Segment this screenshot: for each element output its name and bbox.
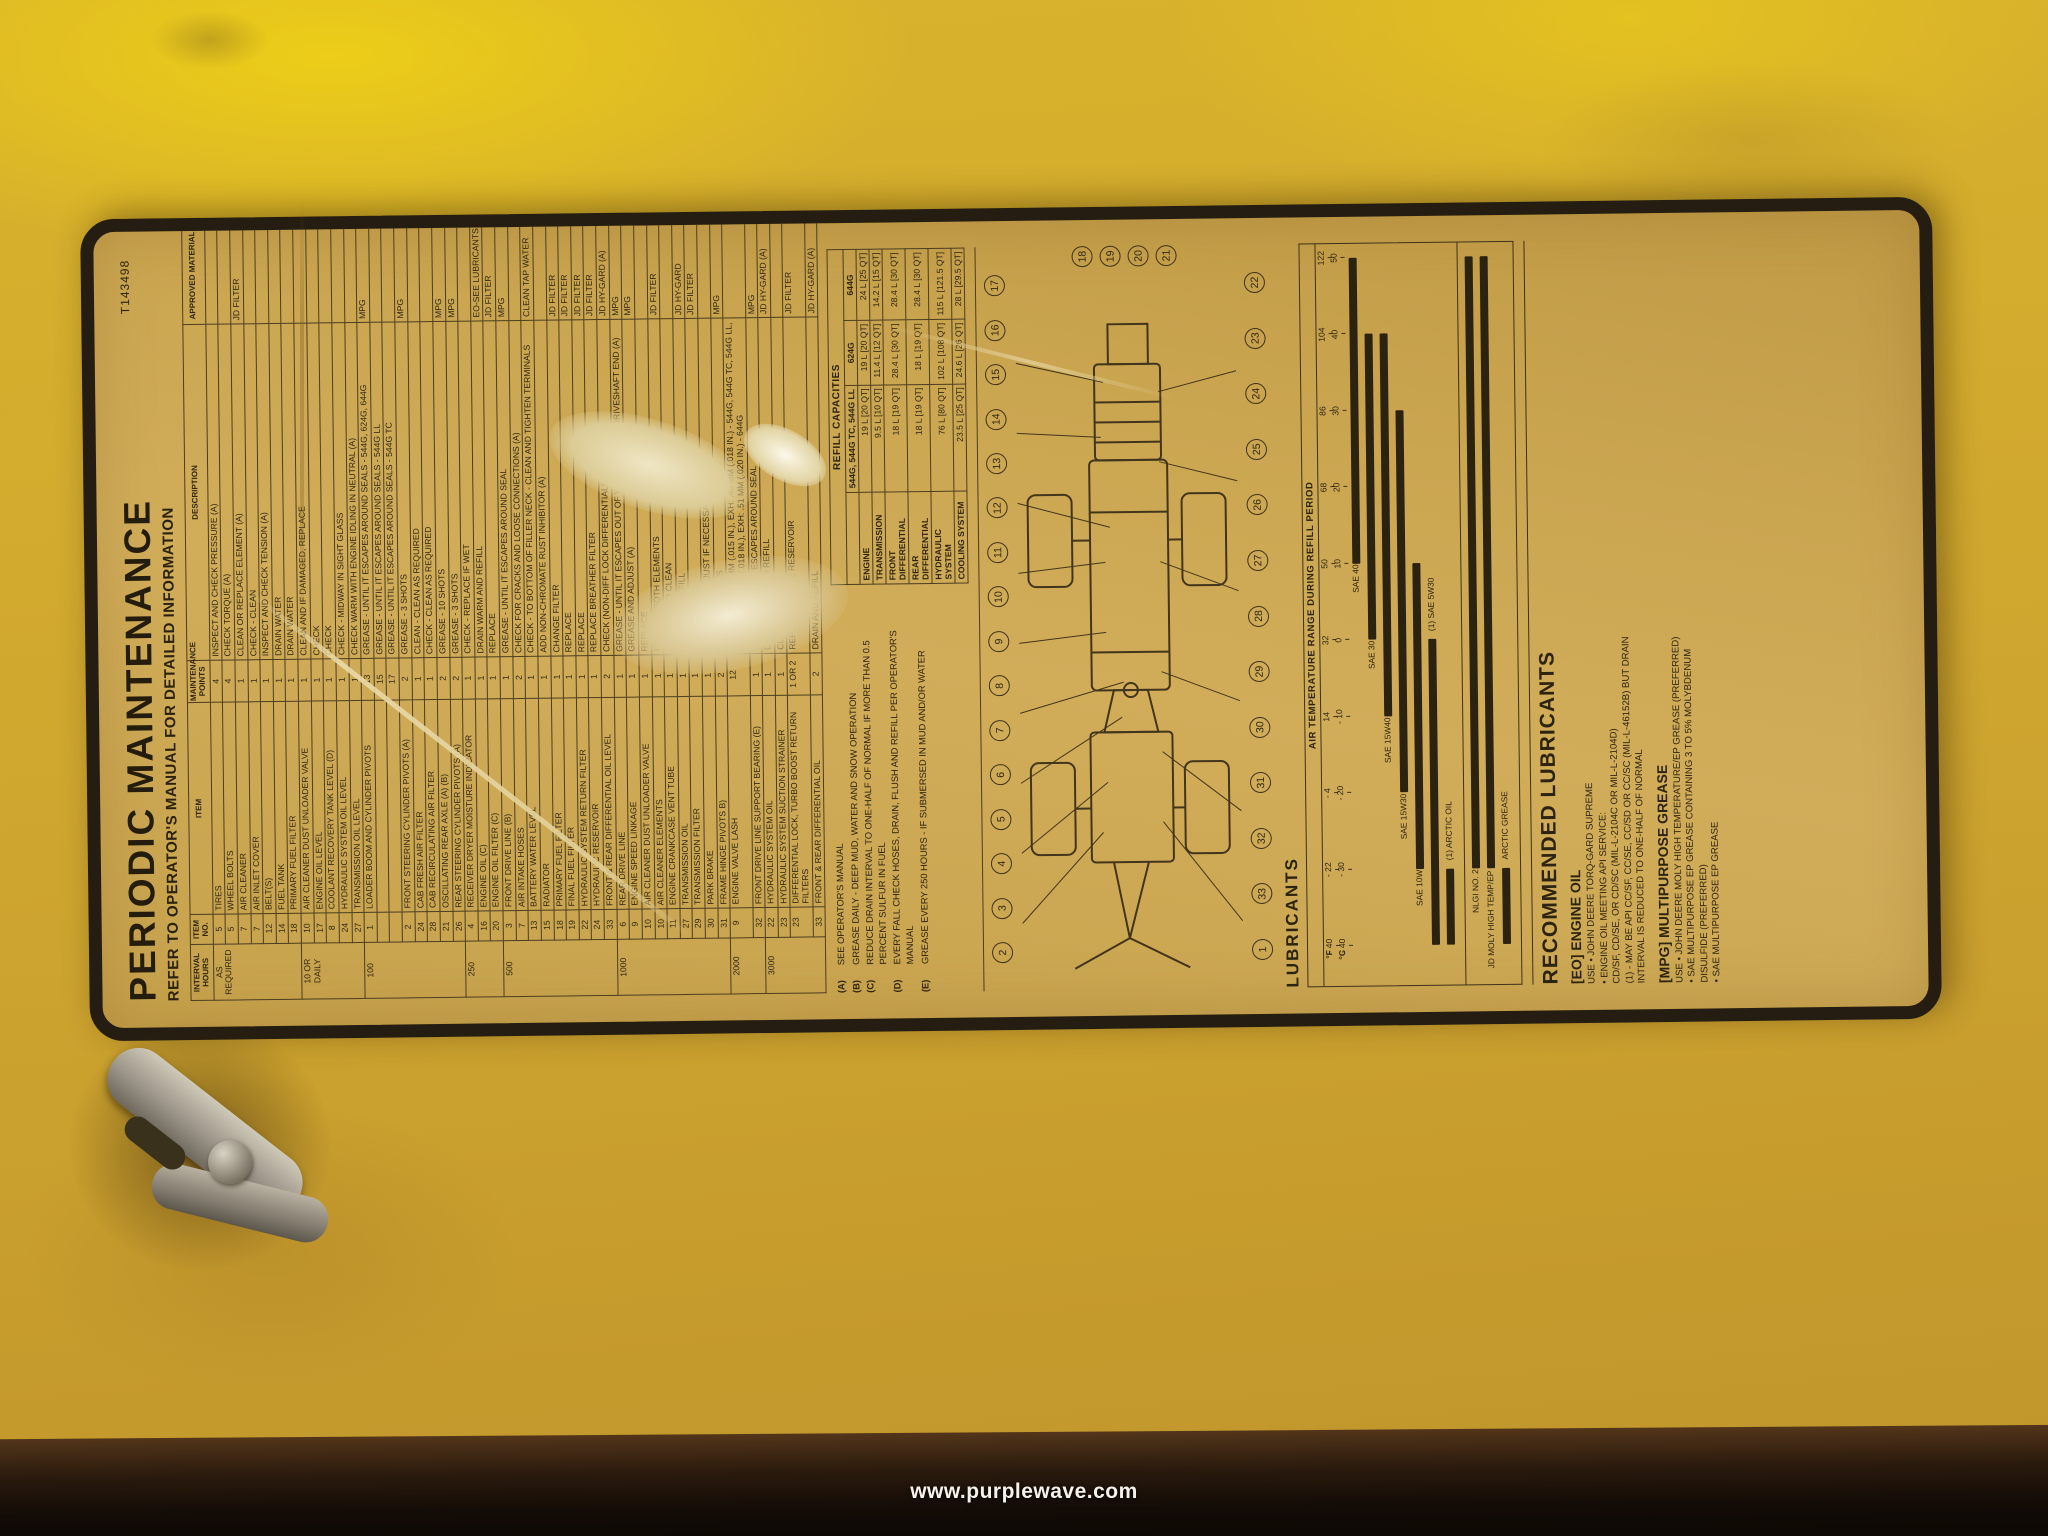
tick-mark (1344, 486, 1348, 487)
cell: 1 (235, 660, 248, 702)
cell: 5 (213, 914, 226, 944)
refill-system: ENGINE (859, 492, 873, 584)
paint-stain (1540, 60, 1960, 220)
col-item: ITEM (187, 702, 212, 914)
cell (722, 220, 745, 318)
refill-system: COOLING SYSTEM (954, 491, 968, 583)
cell: 8 (326, 913, 339, 943)
cell: JD FILTER (570, 222, 584, 320)
cell: 28 (427, 911, 440, 941)
cell: 2 (810, 653, 823, 695)
cell: 2 (437, 657, 450, 699)
machine-drawing-wrap: 18192021 (1007, 244, 1251, 991)
bar-label: SAE 15W30 (1398, 794, 1409, 840)
callout-23: 23 (1245, 328, 1266, 349)
refill-value: 28 L [29.5 QT] (951, 248, 965, 319)
cell: 17 (386, 658, 399, 700)
cell: 33 (813, 907, 826, 937)
cell (343, 224, 357, 322)
callout-31: 31 (1250, 772, 1271, 793)
refill-value: 23.5 L [25 QT] (953, 384, 967, 491)
bar-label: (1) SAE 5W30 (1426, 578, 1437, 632)
tick-mark (1347, 792, 1351, 793)
cell: 13 (528, 910, 541, 940)
refill-value: 11.4 L [12 QT] (870, 320, 884, 385)
cell: CLEAN TAP WATER (520, 222, 534, 320)
engine-oil-lines: USE • JOHN DEERE TORQ-GARD SUPREME• ENGI… (1578, 239, 1649, 984)
tick-label: 0 (1334, 638, 1344, 643)
cell: MPG (356, 224, 370, 322)
cell: 22 (765, 907, 778, 937)
loader-top-view-drawing (1007, 273, 1251, 991)
cell: JD HY-GARD (A) (596, 221, 610, 319)
bar-label: SAE 15W40 (1382, 717, 1393, 763)
grease-bars: NLGI NO. 2JD MOLY HIGH TEMP/EPARCTIC GRE… (1462, 256, 1515, 944)
cell: 2 (399, 658, 412, 700)
cell: 1 (462, 657, 475, 699)
callout-26: 26 (1247, 494, 1268, 515)
temperature-range-bar (1502, 867, 1511, 944)
tick-label: - 40 (1324, 939, 1334, 954)
tick-label: - 30 (1336, 862, 1346, 877)
cell: 7 (238, 914, 251, 944)
cell: 26 (453, 911, 466, 941)
refill-value: 24.6 L [26 QT] (952, 319, 966, 384)
callout-29: 29 (1249, 661, 1270, 682)
watermark-text: www.purplewave.com (910, 1480, 1138, 1504)
cell: 1 (576, 656, 589, 698)
cell (331, 225, 345, 323)
cell (634, 221, 648, 319)
tick-mark (1345, 563, 1349, 564)
cell: MPG (432, 223, 446, 321)
cell: 4 (222, 660, 235, 702)
refill-value: 9.5 L [10 QT] (871, 385, 885, 492)
callout-3: 3 (992, 898, 1013, 919)
cell: 1 (475, 657, 488, 699)
cell: 1 (563, 656, 576, 698)
cell: 16 (478, 911, 491, 941)
cell: 3 (503, 911, 516, 941)
bar-label: ARCTIC GREASE (1499, 791, 1510, 860)
callout-2: 2 (992, 942, 1013, 963)
col-maintenance-points: MAINTENANCE POINTS (187, 660, 210, 702)
cell (507, 222, 521, 320)
cell (377, 912, 390, 942)
refill-value: 28.4 L [30 QT] (905, 248, 929, 319)
tick-label: - 10 (1334, 709, 1344, 724)
cell: JD FILTER (782, 219, 805, 317)
cell: JD FILTER (684, 220, 698, 318)
cell (305, 225, 319, 323)
cell (217, 226, 231, 324)
cell: MPG (394, 224, 408, 322)
cell: JD HY-GARD (A) (757, 219, 771, 317)
tick-mark (1349, 945, 1353, 946)
footnote-code: (B) (850, 971, 863, 993)
cell: 1 (775, 653, 788, 695)
cell: 9 (730, 908, 753, 938)
tick-label: - 4 (1322, 788, 1332, 798)
cell: 9 (629, 909, 642, 939)
callout-14: 14 (986, 409, 1007, 430)
machine-callout-diagram: 234567891011121314151617 (975, 244, 1274, 991)
decal-crease (300, 200, 304, 630)
interval-cell: 250 (466, 941, 505, 997)
cell: FRONT & REAR DIFFERENTIAL OIL (810, 695, 825, 907)
callout-32: 32 (1251, 828, 1272, 849)
callout-5: 5 (991, 809, 1012, 830)
cell: 1 (273, 659, 286, 701)
callout-15: 15 (985, 364, 1006, 385)
refill-value: 18 L [19 QT] (907, 384, 931, 491)
tick-label: 86 (1318, 406, 1328, 416)
cell (697, 220, 711, 318)
temperature-range-bar (1349, 258, 1361, 564)
celsius-unit: °C (1337, 950, 1347, 974)
refill-col-header: 544G, 544G TC, 544G LL (845, 385, 859, 492)
callout-11: 11 (987, 542, 1008, 563)
cell: 1 (364, 912, 377, 942)
cell: 18 (288, 913, 301, 943)
cell: 1 (500, 657, 513, 699)
cell: 1 OR 2 (787, 653, 810, 695)
cell (769, 219, 783, 317)
refill-table-body: ENGINE19 L [20 QT]19 L [20 QT]24 L [25 Q… (856, 248, 968, 584)
tick-label: 10 (1333, 559, 1343, 569)
bar-label: SAE 30 (1367, 641, 1377, 670)
footnote-text: REDUCE DRAIN INTERVAL TO ONE-HALF OF NOR… (860, 598, 890, 964)
cell: 4 (210, 660, 223, 702)
callout-18: 18 (1072, 246, 1093, 267)
cell: MPG (608, 221, 622, 319)
cell (368, 224, 382, 322)
tick-label: - 22 (1323, 862, 1333, 877)
multipurpose-grease-lines: USE • JOHN DEERE MOLY HIGH TEMPERATURE/E… (1665, 238, 1724, 983)
cell: 1 (614, 655, 627, 697)
cell (204, 226, 218, 324)
cell: 10 (301, 913, 314, 943)
cell (659, 221, 673, 319)
cell: MPG (621, 221, 635, 319)
callout-9: 9 (988, 631, 1009, 652)
footnote: (E)GREASE EVERY 250 HOURS - IF SUBMERSED… (914, 598, 931, 992)
footnote-text: SEE OPERATOR'S MANUAL (834, 843, 848, 965)
callout-12: 12 (987, 497, 1008, 518)
cell: 1 (550, 656, 563, 698)
interval-cell: 2000 (731, 938, 767, 994)
callout-col-right: 18192021 (1072, 245, 1177, 267)
cell: 12 (263, 914, 276, 944)
temperature-range-bar (1365, 334, 1377, 640)
cell: JD HY-GARD (671, 220, 685, 318)
cell: 1 (424, 658, 437, 700)
temperature-range-bar (1446, 868, 1455, 945)
callout-25: 25 (1246, 439, 1267, 460)
cell (419, 224, 433, 322)
tick-mark (1343, 410, 1347, 411)
refill-value: 115 L [121.5 QT] (928, 248, 952, 319)
cell: 24 (339, 913, 352, 943)
decal-title: PERIODIC MAINTENANCE (116, 257, 163, 1001)
cell: 2 (601, 655, 614, 697)
refill-system: TRANSMISSION (872, 492, 886, 584)
callout-16: 16 (985, 320, 1006, 341)
callout-13: 13 (986, 453, 1007, 474)
callout-8: 8 (989, 675, 1010, 696)
cell: JD FILTER (482, 223, 496, 321)
refill-col-header: 644G (843, 249, 857, 320)
cell: 2 (513, 656, 526, 698)
temperature-range-bar (1413, 563, 1425, 869)
cell: 4 (465, 911, 478, 941)
footnote-list: (A)SEE OPERATOR'S MANUAL(B)GREASE DAILY … (831, 598, 934, 993)
cell: 1 (260, 660, 273, 702)
cell: JD HY-GARD (A) (804, 219, 818, 317)
tick-mark (1346, 639, 1350, 640)
cell (242, 226, 256, 324)
bar-label: SAE 10W (1414, 870, 1424, 906)
recommended-lubricants-title: RECOMMENDED LUBRICANTS (1531, 240, 1564, 984)
lubricants-section: LUBRICANTS AIR TEMPERATURE RANGE DURING … (1275, 241, 1523, 988)
tick-mark (1346, 716, 1350, 717)
periodic-maintenance-decal: PERIODIC MAINTENANCE REFER TO OPERATOR'S… (80, 197, 1942, 1042)
cell: MPG (495, 223, 509, 321)
footnote-code: (E) (919, 970, 932, 992)
bar-label: JD MOLY HIGH TEMP/EP (1485, 871, 1496, 969)
tick-label: 68 (1319, 483, 1329, 493)
cell (267, 225, 281, 323)
footnote-text: GREASE EVERY 250 HOURS - IF SUBMERSED IN… (915, 650, 931, 964)
callout-6: 6 (990, 764, 1011, 785)
cell: 1 (323, 659, 336, 701)
footnote: (C)REDUCE DRAIN INTERVAL TO ONE-HALF OF … (860, 598, 890, 992)
callout-20: 20 (1128, 245, 1149, 266)
cell: JD FILTER (646, 221, 660, 319)
tick-mark (1342, 333, 1346, 334)
interval-cell: 1000 (617, 938, 731, 995)
tick-label: 40 (1330, 330, 1340, 340)
tick-label: 20 (1332, 483, 1342, 493)
photo-of-maintenance-panel: PERIODIC MAINTENANCE REFER TO OPERATOR'S… (0, 0, 2048, 1536)
cell: 15 (541, 910, 554, 940)
cell: 7 (251, 914, 264, 944)
recommended-lubricants-section: RECOMMENDED LUBRICANTS [EO] ENGINE OIL U… (1524, 238, 1724, 984)
refill-value: 24 L [25 QT] (856, 249, 870, 320)
footnote-code: (C) (865, 971, 890, 993)
temperature-range-bar (1396, 410, 1409, 792)
tick-mark (1341, 257, 1345, 258)
fahrenheit-unit: °F (1324, 950, 1334, 974)
decal-part-number: T143498 (118, 260, 133, 315)
footnote-code: (A) (836, 971, 849, 993)
callout-17: 17 (984, 275, 1005, 296)
callout-30: 30 (1249, 717, 1270, 738)
callout-19: 19 (1100, 246, 1121, 267)
cell: 18 (554, 910, 567, 940)
bar-label: (1) ARCTIC OIL (1444, 801, 1455, 860)
cell: 24 (591, 909, 604, 939)
refill-value: 28.4 L [30 QT] (882, 249, 906, 320)
cell: 17 (314, 913, 327, 943)
cell: 1 (588, 656, 601, 698)
paint-stain (150, 10, 270, 70)
cell: ENGINE VALVE LASH (728, 696, 753, 908)
cell: JD FILTER (230, 226, 244, 324)
tick-label: 122 (1316, 251, 1326, 265)
cell: MPG (709, 220, 723, 318)
cell: 32 (753, 908, 766, 938)
tick-label: - 40 (1337, 939, 1347, 954)
cell (533, 222, 547, 320)
cell: 33 (604, 909, 617, 939)
cell (406, 224, 420, 322)
temperature-range-bar (1380, 334, 1393, 716)
refill-value: 18 L [19 QT] (884, 384, 908, 491)
cell: 24 (415, 912, 428, 942)
tick-label: 104 (1317, 327, 1327, 341)
callout-27: 27 (1247, 550, 1268, 571)
cell (389, 912, 402, 942)
callout-33: 33 (1252, 883, 1273, 904)
cell: 1 (247, 660, 260, 702)
refill-system: REAR DIFFERENTIAL (908, 491, 932, 583)
callout-24: 24 (1245, 383, 1266, 404)
cell: 1 (538, 656, 551, 698)
tick-label: 50 (1329, 253, 1339, 263)
cell: MPG (744, 220, 758, 318)
col-item-no: ITEM NO. (190, 914, 213, 944)
tick-label: 50 (1320, 559, 1330, 569)
cell: 5 (225, 914, 238, 944)
footnote-text: EVERY FALL CHECK HOSES, DRAIN, FLUSH AND… (887, 598, 917, 964)
oil-bars: SAE 40SAE 30SAE 15W40SAE 15W30SAE 10W(1)… (1346, 257, 1459, 946)
cell (280, 225, 294, 323)
refill-value: 102 L [108 QT] (929, 319, 953, 384)
refill-corner (846, 492, 860, 584)
callout-28: 28 (1248, 605, 1269, 626)
cell: DIFFERENTIAL LOCK, TURBO BOOST RETURN FI… (788, 695, 813, 907)
refill-system: HYDRAULIC SYSTEM (931, 491, 955, 583)
tick-label: 14 (1321, 712, 1331, 722)
cell: 1 (298, 659, 311, 701)
hinge-bolt (208, 1140, 252, 1184)
cell: 31 (718, 908, 731, 938)
tick-label: 32 (1320, 636, 1330, 646)
interval-cell: 3000 (766, 937, 827, 994)
refill-value: 14.2 L [15 QT] (869, 249, 883, 320)
cell: 2 (449, 657, 462, 699)
footnotes-and-refill: (A)SEE OPERATOR'S MANUAL(B)GREASE DAILY … (827, 248, 974, 994)
callout-21: 21 (1156, 245, 1177, 266)
cell: JD FILTER (558, 222, 572, 320)
tick-label: - 20 (1335, 786, 1345, 801)
cell: EO-SEE LUBRICANTS (469, 223, 483, 321)
panel-hinge-hardware (60, 980, 380, 1310)
cell (318, 225, 332, 323)
cell: 23 (790, 907, 813, 937)
refill-system: FRONT DIFFERENTIAL (885, 492, 909, 584)
cell: 7 (516, 910, 529, 940)
cell (381, 224, 395, 322)
refill-value: 76 L [80 QT] (930, 384, 954, 491)
cell: 20 (490, 911, 503, 941)
cell: 6 (617, 909, 630, 939)
refill-value: 19 L [20 QT] (858, 385, 872, 492)
callout-7: 7 (989, 720, 1010, 741)
cell (255, 226, 269, 324)
cell: 1 (285, 659, 298, 701)
cell (457, 223, 471, 321)
cell: 27 (352, 912, 365, 942)
cell: 21 (440, 911, 453, 941)
cell: MPG (444, 223, 458, 321)
tick-label: 30 (1331, 406, 1341, 416)
cell: 1 (487, 657, 500, 699)
cell: JD FILTER (545, 222, 559, 320)
cell: JD FILTER (583, 222, 597, 320)
cell: 14 (276, 913, 289, 943)
cell: 19 (566, 910, 579, 940)
bar-label: NLGI NO. 2 (1470, 869, 1481, 913)
tick-mark (1348, 868, 1352, 869)
bar-label: SAE 40 (1351, 564, 1361, 593)
cell: 1 (525, 656, 538, 698)
cell: 1 (412, 658, 425, 700)
engine-oil-block: [EO] ENGINE OIL USE • JOHN DEERE TORQ-GA… (1560, 239, 1649, 984)
cell: 22 (579, 910, 592, 940)
cell: 2 (402, 912, 415, 942)
callout-1: 1 (1252, 939, 1273, 960)
decal-header: PERIODIC MAINTENANCE REFER TO OPERATOR'S… (116, 257, 183, 1002)
refill-value: 19 L [20 QT] (857, 320, 871, 385)
refill-row: COOLING SYSTEM23.5 L [25 QT]24.6 L [26 Q… (951, 248, 968, 583)
interval-cell: 500 (503, 939, 617, 996)
col-approved-material: APPROVED MATERIAL (181, 226, 205, 324)
footnote: (D)EVERY FALL CHECK HOSES, DRAIN, FLUSH … (887, 598, 917, 992)
cell: 23 (778, 907, 791, 937)
footnote-text: GREASE DAILY - DEEP MUD, WATER AND SNOW … (847, 693, 863, 965)
callout-10: 10 (988, 586, 1009, 607)
callout-4: 4 (991, 853, 1012, 874)
cell: 30 (705, 908, 718, 938)
cell: 1 (311, 659, 324, 701)
multipurpose-grease-block: [MPG] MULTIPURPOSE GREASE USE • JOHN DEE… (1647, 238, 1724, 983)
cell: 29 (692, 908, 705, 938)
temperature-range-bar (1429, 639, 1441, 945)
callout-22: 22 (1244, 272, 1265, 293)
cell: 10 (642, 909, 655, 939)
air-temperature-chart: AIR TEMPERATURE RANGE DURING REFILL PERI… (1299, 241, 1523, 988)
footnote-code: (D) (892, 970, 917, 992)
refill-capacities-table: REFILL CAPACITIES 544G, 544G TC, 544G LL… (827, 248, 969, 585)
refill-col-header: 624G (844, 320, 858, 385)
